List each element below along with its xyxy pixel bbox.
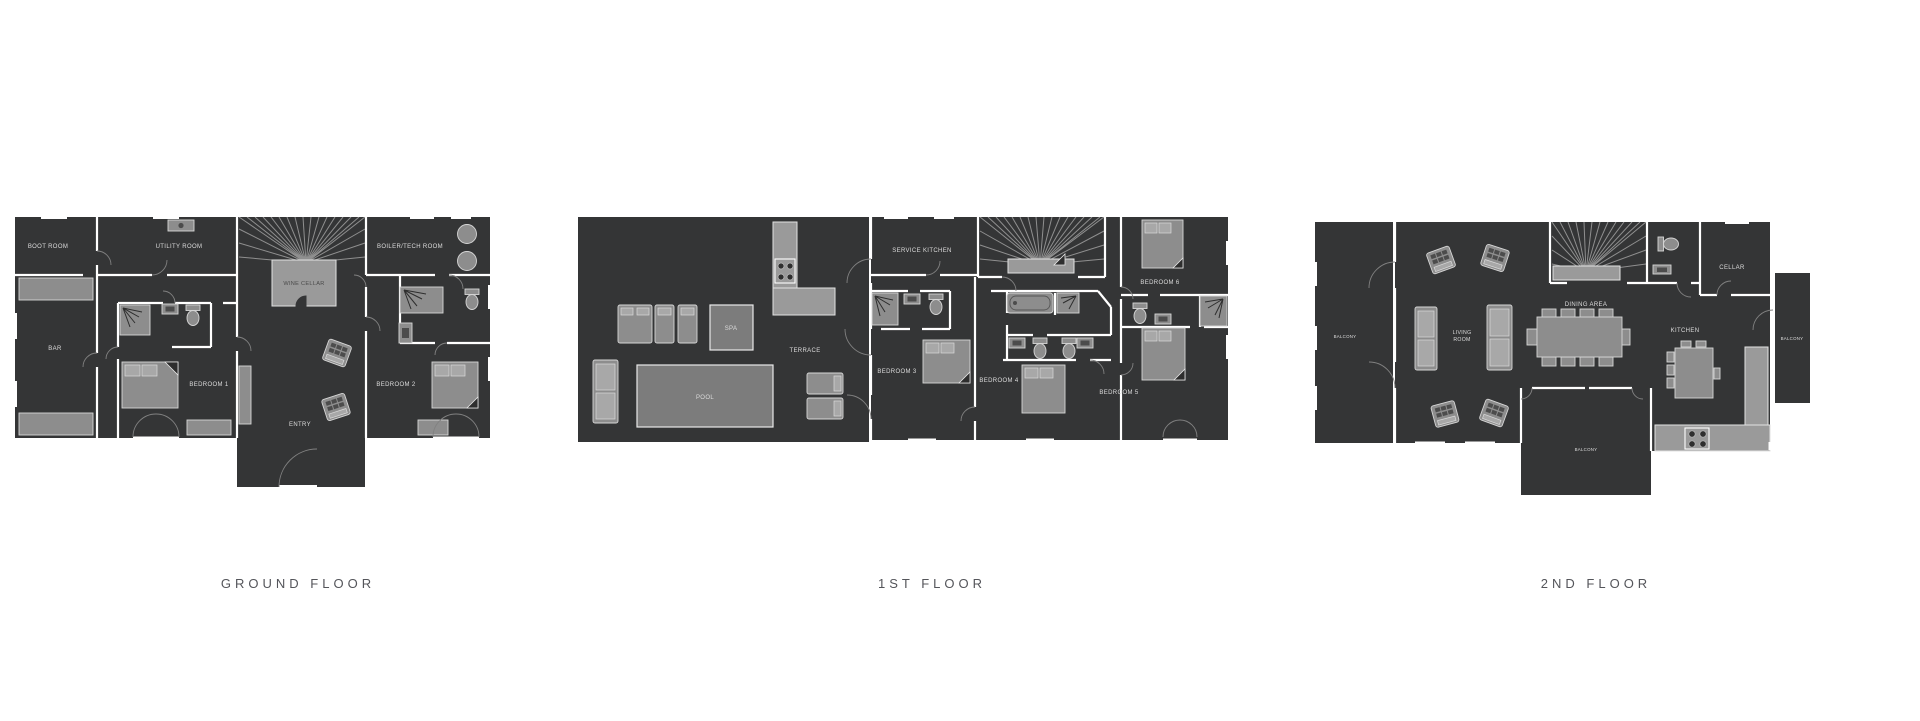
shower-icon <box>872 293 898 325</box>
room-label-terrace: TERRACE <box>789 348 820 354</box>
kitchen-island-icon <box>1667 341 1720 398</box>
floor-title-first: 1ST FLOOR <box>767 576 1097 591</box>
wine-cellar: WINE CELLAR <box>272 260 336 306</box>
sink-icon <box>1077 338 1093 348</box>
room-label-bedroom-5: BEDROOM 5 <box>1099 390 1138 396</box>
room-label-balcony-left: BALCONY <box>1334 334 1357 339</box>
room-label-wine-cellar: WINE CELLAR <box>283 281 324 287</box>
room-label-pool: POOL <box>696 395 714 401</box>
floor-plan-second: BALCONY LIVING ROOM DINING AREA KITCHEN … <box>1315 222 1812 497</box>
room-label-spa: SPA <box>725 326 738 332</box>
shower-icon <box>120 305 150 335</box>
bed-icon <box>1142 220 1183 268</box>
room-label-bedroom-4: BEDROOM 4 <box>979 378 1018 384</box>
bed-icon <box>432 362 478 408</box>
room-label-entry: ENTRY <box>289 422 311 428</box>
room-label-bedroom-1: BEDROOM 1 <box>189 382 228 388</box>
room-label-kitchen: KITCHEN <box>1671 328 1700 334</box>
toilet-icon <box>1133 303 1147 324</box>
entry-porch <box>237 438 365 487</box>
shower-icon <box>1057 293 1079 313</box>
stair-landing <box>1553 266 1620 280</box>
bed-icon <box>923 340 970 383</box>
room-label-utility-room: UTILITY ROOM <box>156 244 203 250</box>
floor-plan-first: SPA POOL <box>578 217 1228 443</box>
balcony-left-body <box>1315 222 1393 443</box>
shower-icon <box>1200 296 1227 326</box>
sink-icon <box>1009 338 1025 348</box>
sofa-icon <box>1415 307 1437 370</box>
ground-floor-body <box>15 217 490 438</box>
room-label-boiler-tech-room: BOILER/TECH ROOM <box>377 244 443 250</box>
sink-icon <box>904 294 920 304</box>
shower-icon <box>400 287 443 313</box>
toilet-icon <box>186 305 200 326</box>
sofa-icon <box>1487 305 1512 370</box>
sink-icon <box>1155 314 1171 324</box>
sun-lounger-icon <box>618 305 697 343</box>
washing-machine-icon <box>168 220 194 231</box>
sink-icon <box>162 304 178 314</box>
toilet-icon <box>465 289 479 310</box>
room-label-bedroom-2: BEDROOM 2 <box>376 382 415 388</box>
sink-icon <box>399 323 412 343</box>
bathtub-icon <box>1007 293 1053 313</box>
floor-title-second: 2ND FLOOR <box>1431 576 1761 591</box>
room-label-living-room-line2: ROOM <box>1453 337 1470 343</box>
balcony-bottom-body <box>1521 388 1651 495</box>
toilet-icon <box>929 294 943 315</box>
room-label-boot-room: BOOT ROOM <box>28 244 68 250</box>
room-label-service-kitchen: SERVICE KITCHEN <box>892 248 951 254</box>
toilet-icon <box>1658 237 1679 251</box>
floor-plan-ground: WINE CELLAR <box>15 217 490 489</box>
toilet-icon <box>1033 338 1047 359</box>
spa: SPA <box>710 305 753 350</box>
hall-bench-icon <box>239 366 251 424</box>
sink-icon <box>1653 265 1671 274</box>
room-label-balcony-bottom: BALCONY <box>1575 447 1598 452</box>
floor-title-ground: GROUND FLOOR <box>133 576 463 591</box>
room-label-dining-area: DINING AREA <box>1565 302 1608 308</box>
bed-icon <box>122 362 178 408</box>
toilet-icon <box>1062 338 1076 359</box>
floorplan-sheet: WINE CELLAR <box>0 0 1920 721</box>
room-label-cellar: CELLAR <box>1719 265 1745 271</box>
room-label-living-room-line1: LIVING <box>1453 330 1472 336</box>
sofa-icon <box>593 360 618 423</box>
bed-icon <box>1142 328 1185 380</box>
room-label-bar: BAR <box>48 346 62 352</box>
room-label-balcony-right: BALCONY <box>1781 336 1804 341</box>
room-label-bedroom-3: BEDROOM 3 <box>877 369 916 375</box>
room-label-bedroom-6: BEDROOM 6 <box>1140 280 1179 286</box>
pool: POOL <box>637 365 773 427</box>
bench-icon <box>187 420 231 435</box>
